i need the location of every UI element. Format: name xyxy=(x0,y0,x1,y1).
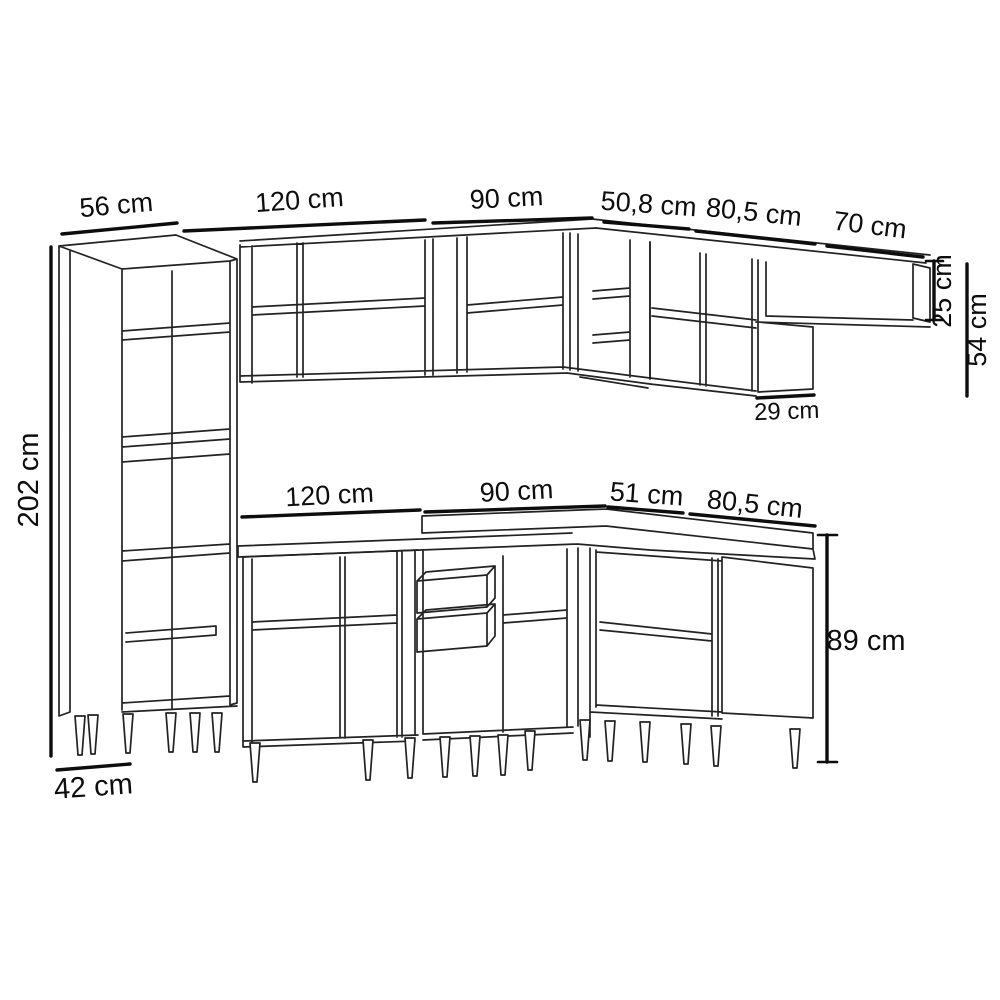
dim-label-120cm-mid: 120 cm xyxy=(285,478,375,513)
dim-line-120-top xyxy=(184,220,425,231)
dim-label-89cm: 89 cm xyxy=(827,625,906,657)
dim-line-70 xyxy=(827,246,923,257)
dim-label-29cm: 29 cm xyxy=(754,397,820,426)
dim-line-56 xyxy=(62,223,177,234)
dim-line-508 xyxy=(604,222,689,229)
cabinet-legs xyxy=(75,713,800,782)
dim-label-54cm: 54 cm xyxy=(962,293,992,367)
dim-label-25cm: 25 cm xyxy=(927,254,957,328)
wall-cabinets-right-run xyxy=(592,219,930,396)
tall-cabinet xyxy=(59,235,237,716)
cabinet-line-drawing: 56 cm 120 cm 90 cm 50,8 cm 80,5 cm 70 cm… xyxy=(0,0,1000,1000)
dim-label-805cm-top: 80,5 cm xyxy=(705,192,804,232)
dim-line-805-top xyxy=(696,231,815,244)
dim-label-70cm: 70 cm xyxy=(832,206,909,245)
diagram-canvas: 56 cm 120 cm 90 cm 50,8 cm 80,5 cm 70 cm… xyxy=(0,0,1000,1000)
dim-line-120-mid xyxy=(242,510,420,517)
base-corner-cabinet xyxy=(415,548,578,740)
dim-label-51cm: 51 cm xyxy=(609,476,684,511)
base-cabinet-120 xyxy=(243,550,418,747)
dim-label-56cm: 56 cm xyxy=(78,187,154,223)
dim-line-90-mid xyxy=(425,506,605,512)
dim-label-90cm-top: 90 cm xyxy=(469,181,544,215)
dim-label-90cm-mid: 90 cm xyxy=(479,474,554,508)
dim-label-508cm: 50,8 cm xyxy=(600,186,698,223)
wall-cabinets-left-run xyxy=(240,219,650,388)
base-cabinet-805 xyxy=(590,548,813,737)
dim-label-202cm: 202 cm xyxy=(13,432,45,527)
dim-label-120cm-top: 120 cm xyxy=(254,182,344,218)
dim-label-42cm: 42 cm xyxy=(53,768,134,805)
